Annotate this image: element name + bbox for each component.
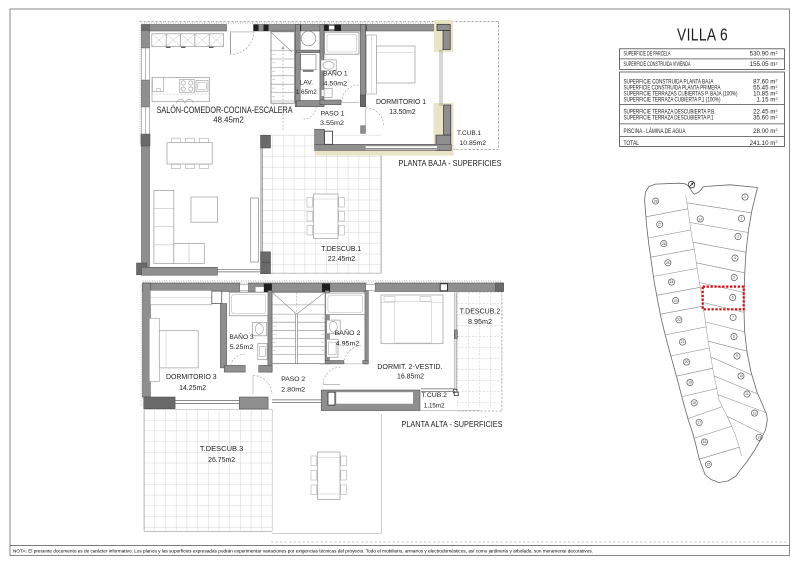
- svg-text:2: 2: [741, 217, 743, 221]
- svg-text:19: 19: [688, 381, 692, 385]
- svg-text:PASO 2: PASO 2: [281, 376, 305, 383]
- svg-text:25: 25: [666, 261, 670, 265]
- svg-text:9: 9: [736, 354, 738, 358]
- svg-text:17: 17: [697, 421, 701, 425]
- svg-text:SALÓN-COMEDOR-COCINA-ESCALERA: SALÓN-COMEDOR-COCINA-ESCALERA: [157, 105, 294, 115]
- svg-text:PASO 1: PASO 1: [321, 110, 345, 117]
- svg-text:13: 13: [757, 436, 761, 440]
- svg-text:14: 14: [698, 217, 702, 221]
- svg-text:LAV.: LAV.: [300, 79, 314, 86]
- svg-text:12: 12: [753, 411, 757, 415]
- svg-text:26.75m2: 26.75m2: [208, 457, 235, 464]
- svg-text:PLANTA BAJA - SUPERFICIES: PLANTA BAJA - SUPERFICIES: [399, 158, 502, 168]
- svg-text:7: 7: [732, 316, 734, 320]
- svg-text:SUPERFICIE CONSTRUIDA VIVIENDA: SUPERFICIE CONSTRUIDA VIVIENDA: [624, 61, 692, 68]
- svg-text:15: 15: [707, 463, 711, 467]
- svg-text:T.CUB.2: T.CUB.2: [422, 392, 448, 399]
- svg-text:13.50m2: 13.50m2: [389, 107, 415, 116]
- svg-text:16: 16: [703, 440, 707, 444]
- svg-text:21: 21: [681, 340, 685, 344]
- svg-text:11: 11: [745, 392, 749, 396]
- svg-text:VILLA 6: VILLA 6: [677, 24, 728, 44]
- svg-text:DORMIT. 2-VESTID.: DORMIT. 2-VESTID.: [377, 362, 442, 371]
- svg-text:20: 20: [685, 360, 689, 364]
- svg-text:BAÑO 1: BAÑO 1: [323, 68, 348, 77]
- svg-text:DORMITORIO 1: DORMITORIO 1: [376, 97, 426, 106]
- svg-text:18: 18: [692, 401, 696, 405]
- svg-text:SUPERFICIE TERRAZA CUBIERTA P.: SUPERFICIE TERRAZA CUBIERTA P.1 (100%): [624, 97, 721, 104]
- svg-text:28.00 m2: 28.00 m2: [753, 128, 777, 135]
- svg-text:26: 26: [662, 242, 666, 246]
- svg-text:155.05 m2: 155.05 m2: [750, 61, 778, 68]
- svg-text:24: 24: [670, 280, 674, 284]
- svg-text:28: 28: [654, 199, 658, 203]
- svg-text:241.10 m2: 241.10 m2: [750, 140, 778, 147]
- svg-text:4.50m2: 4.50m2: [324, 80, 348, 87]
- svg-text:4.95m2: 4.95m2: [336, 340, 360, 347]
- svg-text:PISCINA - LÁMINA DE AGUA: PISCINA - LÁMINA DE AGUA: [624, 128, 687, 135]
- svg-text:T.DESCUB.2: T.DESCUB.2: [460, 309, 501, 316]
- svg-text:48.45m2: 48.45m2: [213, 116, 244, 125]
- svg-text:1.15 m2: 1.15 m2: [757, 97, 778, 104]
- svg-text:27: 27: [658, 223, 662, 227]
- svg-text:14.25m2: 14.25m2: [179, 383, 206, 392]
- svg-text:10: 10: [739, 374, 743, 378]
- svg-text:530.90 m2: 530.90 m2: [750, 51, 778, 58]
- svg-text:8.95m2: 8.95m2: [468, 319, 492, 326]
- svg-text:BAÑO 3: BAÑO 3: [229, 332, 254, 341]
- svg-text:8: 8: [733, 335, 735, 339]
- svg-text:2.80m2: 2.80m2: [281, 386, 305, 393]
- svg-text:SUPERFICIE DE PARCELA: SUPERFICIE DE PARCELA: [624, 51, 672, 58]
- svg-text:35.60 m2: 35.60 m2: [753, 115, 777, 122]
- svg-text:23: 23: [674, 299, 678, 303]
- svg-text:T.DESCUB.3: T.DESCUB.3: [200, 446, 244, 453]
- svg-text:3.55m2: 3.55m2: [320, 120, 344, 127]
- svg-text:22.45m2: 22.45m2: [328, 256, 355, 263]
- svg-text:BAÑO 2: BAÑO 2: [335, 328, 361, 337]
- svg-text:DORMITORIO 3: DORMITORIO 3: [166, 372, 217, 381]
- svg-text:1.65m2: 1.65m2: [296, 89, 317, 96]
- svg-text:PLANTA ALTA - SUPERFICIES: PLANTA ALTA - SUPERFICIES: [402, 419, 503, 429]
- svg-text:1,15m2: 1,15m2: [424, 403, 445, 410]
- svg-text:T.DESCUB.1: T.DESCUB.1: [321, 246, 361, 253]
- svg-text:4: 4: [734, 256, 736, 260]
- svg-text:TOTAL: TOTAL: [624, 140, 640, 147]
- svg-text:16.85m2: 16.85m2: [397, 372, 424, 381]
- svg-text:SUPERFICIE TERRAZA DESCUBIERTA: SUPERFICIE TERRAZA DESCUBIERTA P.1: [624, 115, 714, 122]
- svg-text:5: 5: [733, 276, 735, 280]
- svg-text:6: 6: [732, 296, 734, 300]
- svg-text:22: 22: [677, 318, 681, 322]
- svg-text:10.85m2: 10.85m2: [460, 140, 487, 147]
- svg-text:NOTA: El presente documento es: NOTA: El presente documento es de caráct…: [13, 549, 593, 554]
- svg-text:T.CUB.1: T.CUB.1: [457, 130, 481, 137]
- svg-text:5.25m2: 5.25m2: [230, 344, 254, 351]
- svg-text:3: 3: [737, 235, 739, 239]
- svg-text:1: 1: [744, 195, 746, 199]
